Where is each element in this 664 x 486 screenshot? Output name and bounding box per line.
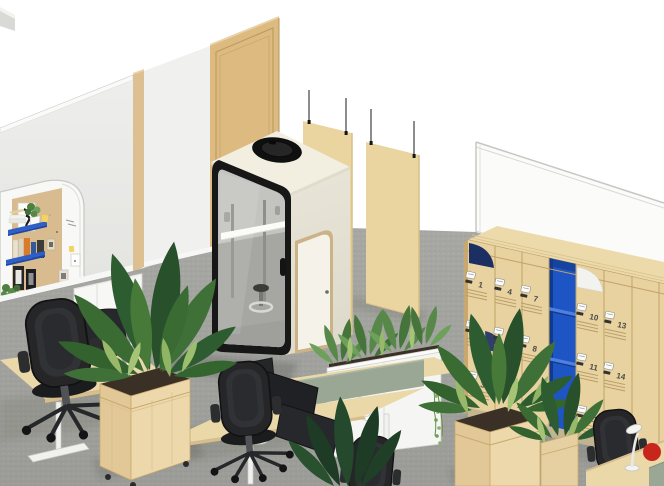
- phone-booth: [211, 131, 350, 355]
- office-scene-svg: 1 2 3 4 5 7 8 10 11 12 13 14: [0, 0, 664, 486]
- red-desk-object: [643, 443, 661, 461]
- booth-door-handle: [280, 258, 286, 276]
- booth-interior: [218, 168, 286, 348]
- wall-panel-light: [144, 46, 210, 267]
- office-render: 1 2 3 4 5 7 8 10 11 12 13 14: [0, 0, 664, 486]
- booth-glass-door: [212, 160, 291, 355]
- wall-wood-strip: [133, 71, 144, 272]
